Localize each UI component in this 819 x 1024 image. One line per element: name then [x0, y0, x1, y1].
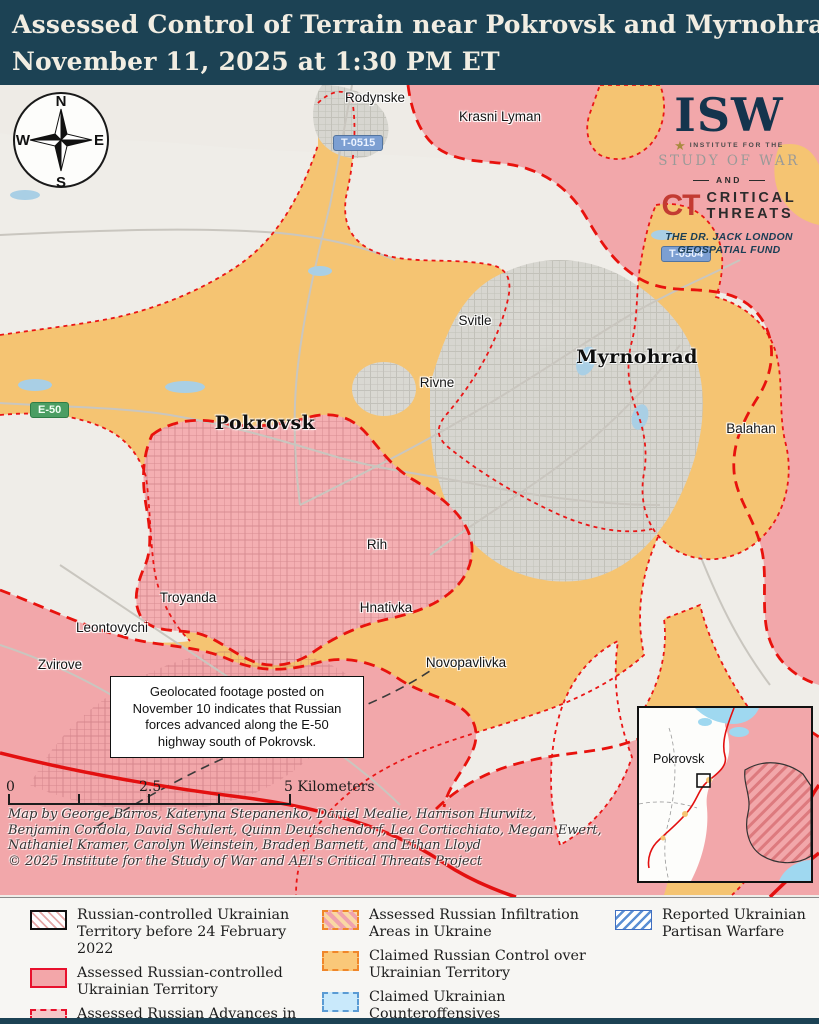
ct-critical: CRITICAL — [706, 190, 796, 206]
isw-ct-logo: ISW ★ INSTITUTE FOR THE STUDY OF WAR AND… — [645, 93, 813, 257]
legend-item-partisan: Reported Ukrainian Partisan Warfare — [615, 907, 815, 941]
label-balahan: Balahan — [726, 421, 776, 436]
swatch-counteroffensives — [322, 992, 359, 1012]
isw-map-page: Assessed Control of Terrain near Pokrovs… — [0, 0, 819, 1024]
title-bar: Assessed Control of Terrain near Pokrovs… — [0, 0, 819, 85]
label-myrnohrad: Myrnohrad — [576, 346, 698, 368]
scale-tick-5km: 5 Kilometers — [284, 779, 375, 795]
isw-wordmark: ISW — [645, 93, 813, 137]
map-credits: Map by George Barros, Kateryna Stepanenk… — [8, 807, 602, 869]
inset-graphics — [639, 708, 811, 881]
scale-tick-2-5: 2.5 — [139, 779, 161, 795]
legend-item-assessed-control: Assessed Russian-controlled Ukrainian Te… — [30, 965, 322, 999]
label-hnativka: Hnativka — [360, 600, 413, 615]
swatch-infiltration — [322, 910, 359, 930]
annotation-box: Geolocated footage posted on November 10… — [110, 676, 364, 758]
legend: Russian-controlled Ukrainian Territory b… — [0, 897, 819, 1024]
inset-locator-map: Pokrovsk — [637, 706, 813, 883]
label-novopavlivka: Novopavlivka — [426, 655, 506, 670]
legend-item-pre2022: Russian-controlled Ukrainian Territory b… — [30, 907, 322, 958]
credits-line1: Map by George Barros, Kateryna Stepanenk… — [8, 807, 602, 823]
label-svitle: Svitle — [458, 313, 491, 328]
isw-star-icon: ★ — [674, 139, 686, 152]
and-dash-right — [749, 180, 765, 181]
label-zvirove: Zvirove — [38, 657, 82, 672]
credits-line4: © 2025 Institute for the Study of War an… — [8, 854, 602, 870]
swatch-pre2022 — [30, 910, 67, 930]
label-leontovychi: Leontovychi — [76, 620, 148, 635]
label-rodynske: Rodynske — [345, 90, 405, 105]
credits-line3: Nathaniel Kramer, Carolyn Weinstein, Bra… — [8, 838, 602, 854]
label-rivne: Rivne — [420, 375, 455, 390]
inset-pokrovsk-label: Pokrovsk — [653, 752, 704, 766]
ct-threats: THREATS — [706, 206, 796, 222]
label-troyanda: Troyanda — [160, 590, 217, 605]
credits-line2: Benjamin Cordola, David Schulert, Quinn … — [8, 823, 602, 839]
scale-bar-line — [8, 796, 291, 805]
isw-institute-line: INSTITUTE FOR THE — [690, 142, 784, 149]
and-dash-left — [693, 180, 709, 181]
compass-rose: N E S W — [10, 89, 112, 191]
swatch-assessed-control — [30, 968, 67, 988]
road-shield-t0515: T-0515 — [333, 135, 383, 151]
bottom-border — [0, 1018, 819, 1024]
compass-w: W — [16, 132, 31, 149]
label-pokrovsk: Pokrovsk — [215, 412, 315, 434]
legend-item-infiltration: Assessed Russian Infiltration Areas in U… — [322, 907, 615, 941]
road-shield-e50: E-50 — [30, 402, 69, 418]
swatch-claimed-control — [322, 951, 359, 971]
ct-monogram: CT — [661, 192, 699, 220]
label-krasni-lyman: Krasni Lyman — [459, 109, 541, 124]
map-canvas: N E S W ISW ★ INSTITUTE FOR THE STUDY OF… — [0, 85, 819, 897]
map-title-line2: November 11, 2025 at 1:30 PM ET — [12, 43, 807, 80]
and-label: AND — [716, 175, 742, 185]
label-rih: Rih — [367, 537, 387, 552]
map-title-line1: Assessed Control of Terrain near Pokrovs… — [12, 6, 807, 43]
scale-bar: 0 2.5 5 Kilometers — [8, 779, 378, 805]
isw-study-line: STUDY OF WAR — [645, 153, 813, 169]
compass-s: S — [56, 174, 66, 191]
legend-item-claimed-control: Claimed Russian Control over Ukrainian T… — [322, 948, 615, 982]
fund-line2: GEOSPATIAL FUND — [645, 244, 813, 257]
compass-n: N — [56, 93, 67, 110]
compass-e: E — [94, 132, 104, 149]
fund-line1: THE DR. JACK LONDON — [645, 231, 813, 244]
swatch-partisan — [615, 910, 652, 930]
scale-tick-0: 0 — [6, 779, 15, 795]
